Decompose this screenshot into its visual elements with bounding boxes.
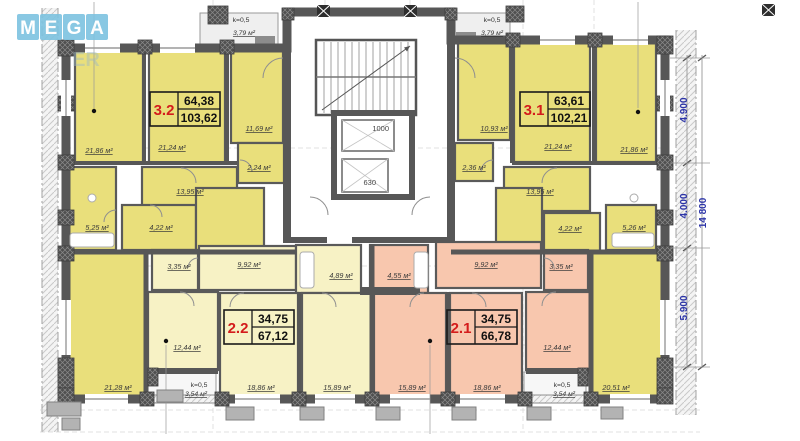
loggia-top-right-k: k=0,5 (484, 17, 501, 24)
dimension-total-14800: 14 800 (698, 197, 709, 228)
bathtub-a22 (300, 252, 314, 288)
loggia-bottom-left-area: 3,54 м² (185, 391, 208, 398)
room-label-a21-wc: 3,35 м² (549, 262, 573, 271)
room-label-a21-hall: 9,92 м² (474, 260, 498, 269)
room-label-l-bath: 5,25 м² (85, 223, 109, 232)
loggia-top-right-area: 3,79 м² (481, 30, 504, 37)
room-label-a22-room2: 15,89 м² (323, 383, 351, 392)
loggia-bottom-right-k: k=0,5 (554, 382, 571, 389)
elevator-small-label: 630 (363, 178, 376, 187)
logo-letter-e: E (45, 18, 58, 39)
apartment-number: 3.2 (154, 102, 175, 119)
bathtub-right (612, 233, 654, 247)
right-hatch-band (676, 30, 696, 415)
room-label-a22-bath: 4,89 м² (329, 271, 353, 280)
apartment-living-area: 34,75 (481, 312, 511, 326)
room-label-a22-kitchen: 12,44 м² (173, 343, 201, 352)
room-label-l-hall2: 13,95 м² (176, 187, 204, 196)
loggia-bottom-right-area: 3,54 м² (553, 391, 576, 398)
room-label-a22-room1: 18,86 м² (247, 383, 275, 392)
room-l-bottom (66, 252, 146, 398)
stair-core: 1000 630 (316, 40, 416, 197)
room-a22-kitchen (148, 292, 218, 370)
room-a21-kitchen (526, 292, 590, 370)
loggia-top-left-area: 3,79 м² (233, 30, 256, 37)
room-r-corridor (496, 188, 542, 250)
room-label-a21-kitchen: 12,44 м² (543, 343, 571, 352)
room-label-r-bath: 5,26 м² (622, 223, 646, 232)
room-r-living1 (596, 40, 656, 162)
elevator-large-label: 1000 (372, 124, 389, 133)
room-label-r-room-bottom: 20,51 м² (601, 383, 630, 392)
room-l-corridor (196, 188, 264, 250)
room-label-l-storage: 2,24 м² (246, 163, 271, 172)
logo-letter-m: M (20, 18, 36, 39)
room-label-l-living1: 21,86 м² (84, 146, 113, 155)
sink-left (88, 194, 96, 202)
apartment-living-area: 64,38 (184, 94, 214, 108)
sink-right (630, 194, 638, 202)
floor-plan-page: 1000 630 3.2 (0, 0, 800, 441)
room-r-bottom (591, 252, 666, 398)
left-hatch-band (42, 8, 58, 432)
room-label-l-living2: 21,24 м² (157, 143, 186, 152)
room-label-r-storage: 2,36 м² (461, 163, 486, 172)
room-label-r-hall: 10,93 м² (480, 124, 508, 133)
apartment-total-area: 67,12 (258, 329, 288, 343)
room-label-r-hall2: 13,95 м² (526, 187, 554, 196)
apartment-total-area: 66,78 (481, 329, 511, 343)
logo-letter-a: A (90, 18, 104, 39)
room-label-r-wc: 4,22 м² (558, 224, 582, 233)
apartment-number: 2.1 (451, 320, 472, 337)
dimension-5900: 5.900 (679, 295, 690, 320)
logo-letter-g: G (67, 18, 82, 39)
room-label-a21-bath: 4,55 м² (387, 271, 411, 280)
bathtub-left (70, 233, 114, 247)
apartment-number: 2.2 (228, 320, 249, 337)
room-label-a21-room2: 15,89 м² (398, 383, 426, 392)
bathtub-a21 (414, 252, 428, 288)
apartment-living-area: 34,75 (258, 312, 288, 326)
apartment-living-area: 63,61 (554, 94, 584, 108)
room-label-l-hall: 11,69 м² (246, 124, 273, 133)
apartment-total-area: 102,21 (551, 111, 588, 125)
loggia-bottom-left-k: k=0,5 (191, 382, 208, 389)
room-label-r-living2: 21,24 м² (543, 142, 572, 151)
room-label-l-room-bottom: 21,28 м² (103, 383, 132, 392)
room-r-storage (455, 143, 493, 181)
room-label-l-wc: 4,22 м² (149, 223, 173, 232)
apartment-total-area: 103,62 (181, 111, 218, 125)
loggia-top-left-k: k=0,5 (233, 17, 250, 24)
apartment-number: 3.1 (524, 102, 545, 119)
dimension-4000: 4.000 (679, 193, 690, 218)
logo-faded-text: ER (72, 49, 100, 71)
dimension-4900: 4.900 (679, 97, 690, 122)
room-label-a22-hall: 9,92 м² (237, 260, 261, 269)
floor-plan: 1000 630 3.2 (0, 0, 800, 441)
room-label-a21-room1: 18,86 м² (473, 383, 501, 392)
room-label-r-living1: 21,86 м² (619, 145, 648, 154)
room-label-a22-wc: 3,35 м² (167, 262, 191, 271)
